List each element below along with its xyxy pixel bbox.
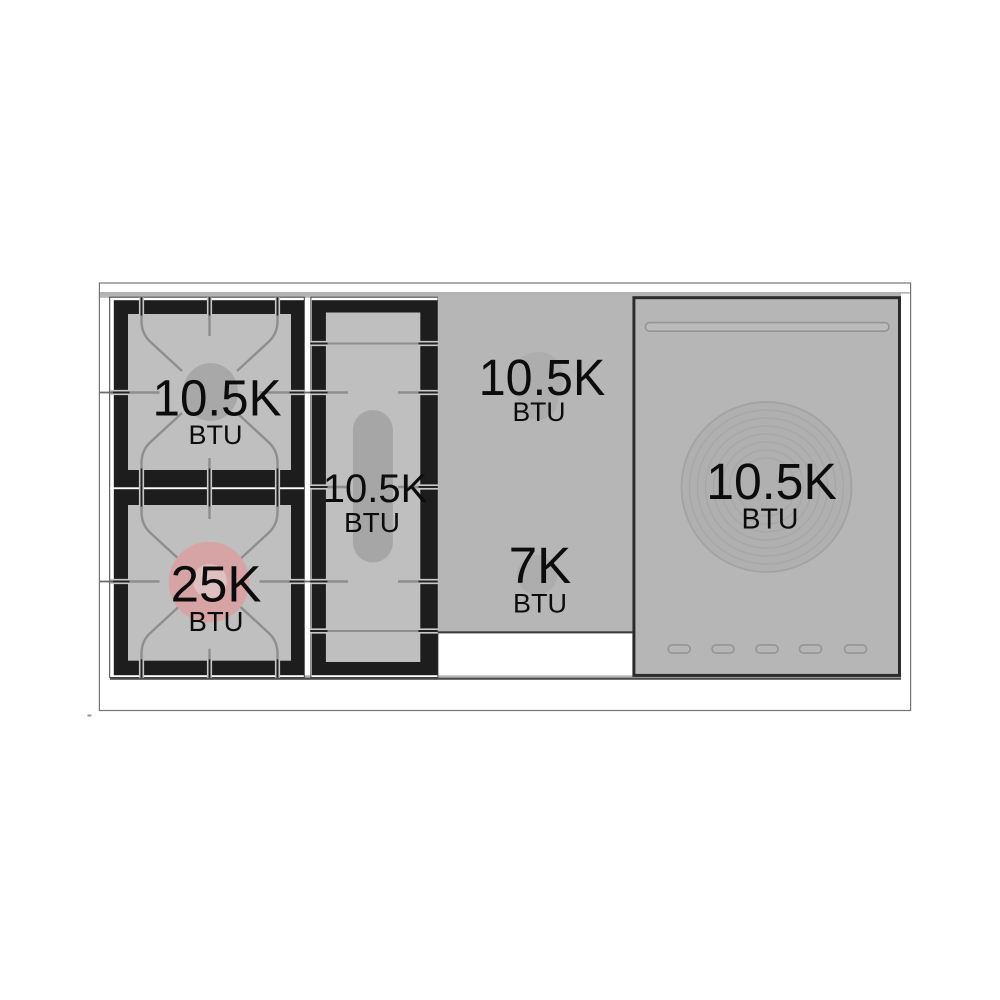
svg-text:BTU: BTU — [513, 397, 566, 427]
svg-text:BTU: BTU — [344, 507, 400, 538]
svg-text:BTU: BTU — [513, 588, 567, 618]
svg-text:BTU: BTU — [189, 420, 243, 450]
svg-text:BTU: BTU — [189, 606, 244, 637]
svg-text:BTU: BTU — [742, 504, 799, 536]
svg-text:10.5K: 10.5K — [323, 467, 428, 511]
svg-text:7K: 7K — [509, 537, 571, 594]
svg-text:10.5K: 10.5K — [153, 370, 282, 427]
svg-text:25K: 25K — [171, 556, 262, 613]
svg-text:10.5K: 10.5K — [706, 453, 837, 510]
